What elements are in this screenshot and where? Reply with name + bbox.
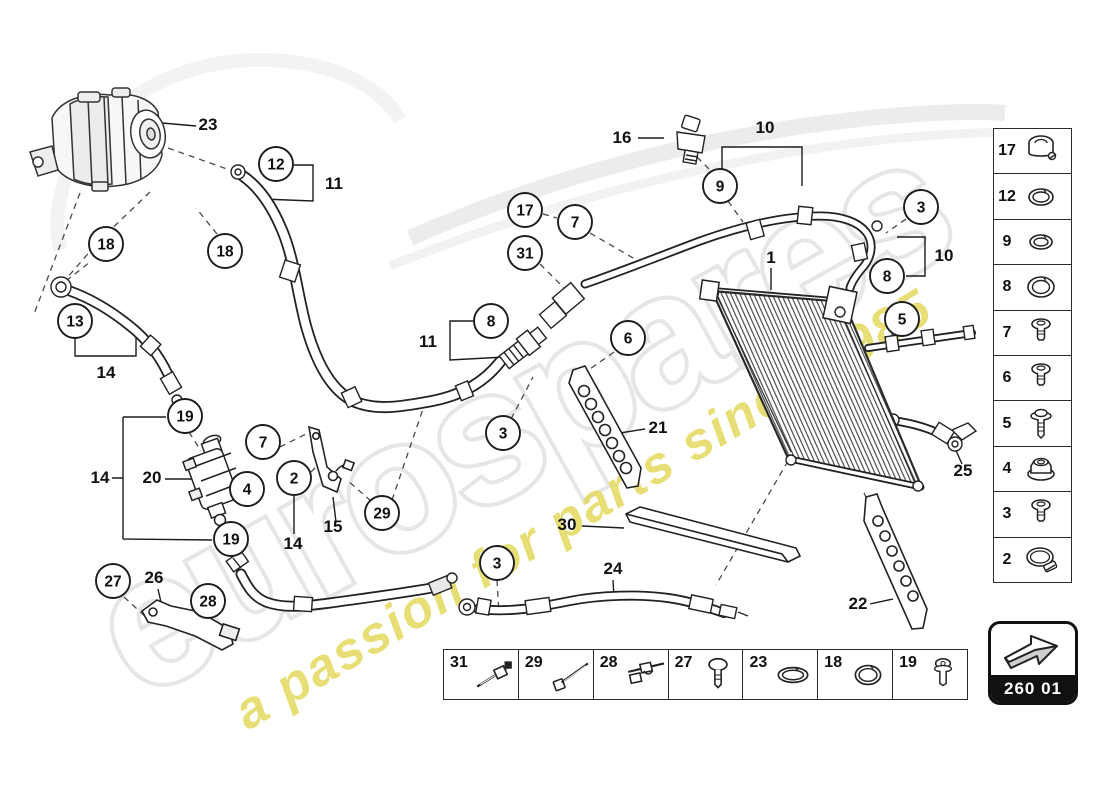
arrow-icon	[991, 624, 1075, 676]
part-label-24: 24	[604, 559, 623, 578]
part-number: 28	[600, 654, 618, 672]
part-number: 5	[994, 415, 1020, 433]
callout-19: 19	[214, 522, 248, 556]
callout-13: 13	[58, 304, 92, 338]
svg-text:7: 7	[571, 215, 580, 232]
svg-text:6: 6	[624, 331, 633, 348]
callout-2: 2	[277, 461, 311, 495]
diagram-code-badge: 260 01	[988, 621, 1078, 705]
legend-part-cell-28: 28	[594, 650, 669, 699]
part-label-26: 26	[145, 568, 164, 587]
bracket-22	[864, 494, 927, 629]
svg-text:9: 9	[716, 179, 725, 196]
callout-7: 7	[246, 425, 280, 459]
svg-text:3: 3	[499, 426, 508, 443]
part-label-16: 16	[613, 128, 632, 147]
svg-text:3: 3	[917, 200, 926, 217]
svg-text:2: 2	[290, 471, 299, 488]
legend-part-cell-31: 31	[444, 650, 519, 699]
part-label-14: 14	[284, 534, 303, 553]
svg-text:7: 7	[259, 435, 268, 452]
svg-text:17: 17	[516, 203, 533, 220]
sidebar-part-row-9: 9	[994, 220, 1071, 265]
svg-text:8: 8	[487, 314, 496, 331]
callout-17: 17	[508, 193, 542, 227]
sidebar-part-row-6: 6	[994, 356, 1071, 401]
flange-nut-icon	[1020, 449, 1062, 489]
svg-text:13: 13	[66, 314, 84, 331]
callout-8: 8	[870, 259, 904, 293]
sidebar-part-row-2: 2	[994, 538, 1071, 582]
svg-text:29: 29	[373, 506, 391, 523]
part-label-14: 14	[97, 363, 116, 382]
screw-icon	[695, 654, 741, 696]
sidebar-part-row-17: 17	[994, 129, 1071, 174]
part-label-11: 11	[325, 174, 343, 193]
part-number: 2	[994, 551, 1020, 569]
callout-9: 9	[703, 169, 737, 203]
callout-12: 12	[259, 147, 293, 181]
compressor	[30, 88, 169, 191]
part-label-23: 23	[199, 115, 218, 134]
svg-text:19: 19	[222, 532, 240, 549]
bolt-small-icon	[920, 654, 966, 696]
part-label-21: 21	[649, 418, 668, 437]
hose-13-14-upper-left	[70, 291, 171, 381]
callout-8: 8	[474, 304, 508, 338]
legend-part-cell-23: 23	[743, 650, 818, 699]
part-number: 23	[749, 654, 767, 672]
callout-28: 28	[191, 584, 225, 618]
part-number: 31	[450, 654, 468, 672]
sidebar-part-row-4: 4	[994, 447, 1071, 492]
parts-sidebar: 171298765432	[993, 128, 1072, 583]
part-number: 19	[899, 654, 917, 672]
part-label-10: 10	[935, 246, 954, 265]
part-number: 9	[994, 233, 1020, 251]
part-label-25: 25	[954, 461, 973, 480]
legend-part-cell-29: 29	[519, 650, 594, 699]
bolt-long-icon	[1020, 404, 1062, 444]
callout-18: 18	[208, 234, 242, 268]
part-label-30: 30	[558, 515, 577, 534]
part-number: 8	[994, 278, 1020, 296]
part-label-14: 14	[91, 468, 110, 487]
svg-text:3: 3	[493, 556, 502, 573]
part-number: 3	[994, 505, 1020, 523]
bolt-icon	[1020, 313, 1062, 353]
part-label-10: 10	[756, 118, 775, 137]
legend-part-cell-19: 19	[893, 650, 967, 699]
cable-tie-icon	[546, 654, 592, 696]
callout-3: 3	[486, 416, 520, 450]
callout-7: 7	[558, 205, 592, 239]
callout-4: 4	[230, 472, 264, 506]
o-ring-flat-icon	[770, 654, 816, 696]
part-label-15: 15	[324, 517, 343, 536]
svg-text:28: 28	[199, 594, 217, 611]
callout-31: 31	[508, 236, 542, 270]
sidebar-part-row-5: 5	[994, 401, 1071, 446]
bolt-icon	[1020, 358, 1062, 398]
part-label-22: 22	[849, 594, 868, 613]
diagram-code: 260 01	[991, 675, 1075, 702]
part-label-11: 11	[419, 332, 437, 351]
strip-30	[626, 507, 800, 562]
legend-part-cell-27: 27	[669, 650, 744, 699]
part-number: 18	[824, 654, 842, 672]
bolt-icon	[1020, 494, 1062, 534]
o-ring-small-icon	[1020, 222, 1062, 262]
svg-text:18: 18	[97, 237, 115, 254]
callout-5: 5	[885, 302, 919, 336]
svg-text:31: 31	[516, 246, 534, 263]
part-number: 17	[994, 142, 1020, 160]
pipe-clamp-icon	[1020, 131, 1062, 171]
callout-3: 3	[904, 190, 938, 224]
svg-text:27: 27	[104, 574, 121, 591]
part-label-1: 1	[766, 248, 775, 267]
hose-clamp-icon	[1020, 540, 1062, 580]
svg-text:8: 8	[883, 269, 892, 286]
part-number: 29	[525, 654, 543, 672]
callout-18: 18	[89, 227, 123, 261]
svg-text:12: 12	[267, 157, 284, 174]
part-number: 7	[994, 324, 1020, 342]
part-number: 12	[994, 188, 1020, 206]
sidebar-part-row-8: 8	[994, 265, 1071, 310]
sidebar-part-row-7: 7	[994, 311, 1071, 356]
condenser-fitting-block	[823, 286, 857, 323]
callout-29: 29	[365, 496, 399, 530]
svg-text:5: 5	[898, 312, 907, 329]
parts-diagram-page: { "watermark": { "brand": "eurospares", …	[0, 0, 1100, 800]
part-label-20: 20	[143, 468, 162, 487]
callout-6: 6	[611, 321, 645, 355]
callout-27: 27	[96, 564, 130, 598]
svg-text:19: 19	[176, 409, 194, 426]
hose-13-14-upper-left	[70, 291, 171, 381]
part-number: 27	[675, 654, 693, 672]
o-ring-split-icon	[1020, 177, 1062, 217]
part-number: 6	[994, 369, 1020, 387]
cable-tie-mount-icon	[471, 654, 517, 696]
svg-text:18: 18	[216, 244, 234, 261]
legend-part-cell-18: 18	[818, 650, 893, 699]
part-number: 4	[994, 460, 1020, 478]
callout-3: 3	[480, 546, 514, 580]
parts-legend: 31292827231819	[443, 649, 968, 700]
svg-text:4: 4	[243, 482, 252, 499]
tie-clip-icon	[621, 654, 667, 696]
o-ring-icon	[845, 654, 891, 696]
sidebar-part-row-3: 3	[994, 492, 1071, 537]
sidebar-part-row-12: 12	[994, 174, 1071, 219]
callout-19: 19	[168, 399, 202, 433]
o-ring-large-icon	[1020, 267, 1062, 307]
